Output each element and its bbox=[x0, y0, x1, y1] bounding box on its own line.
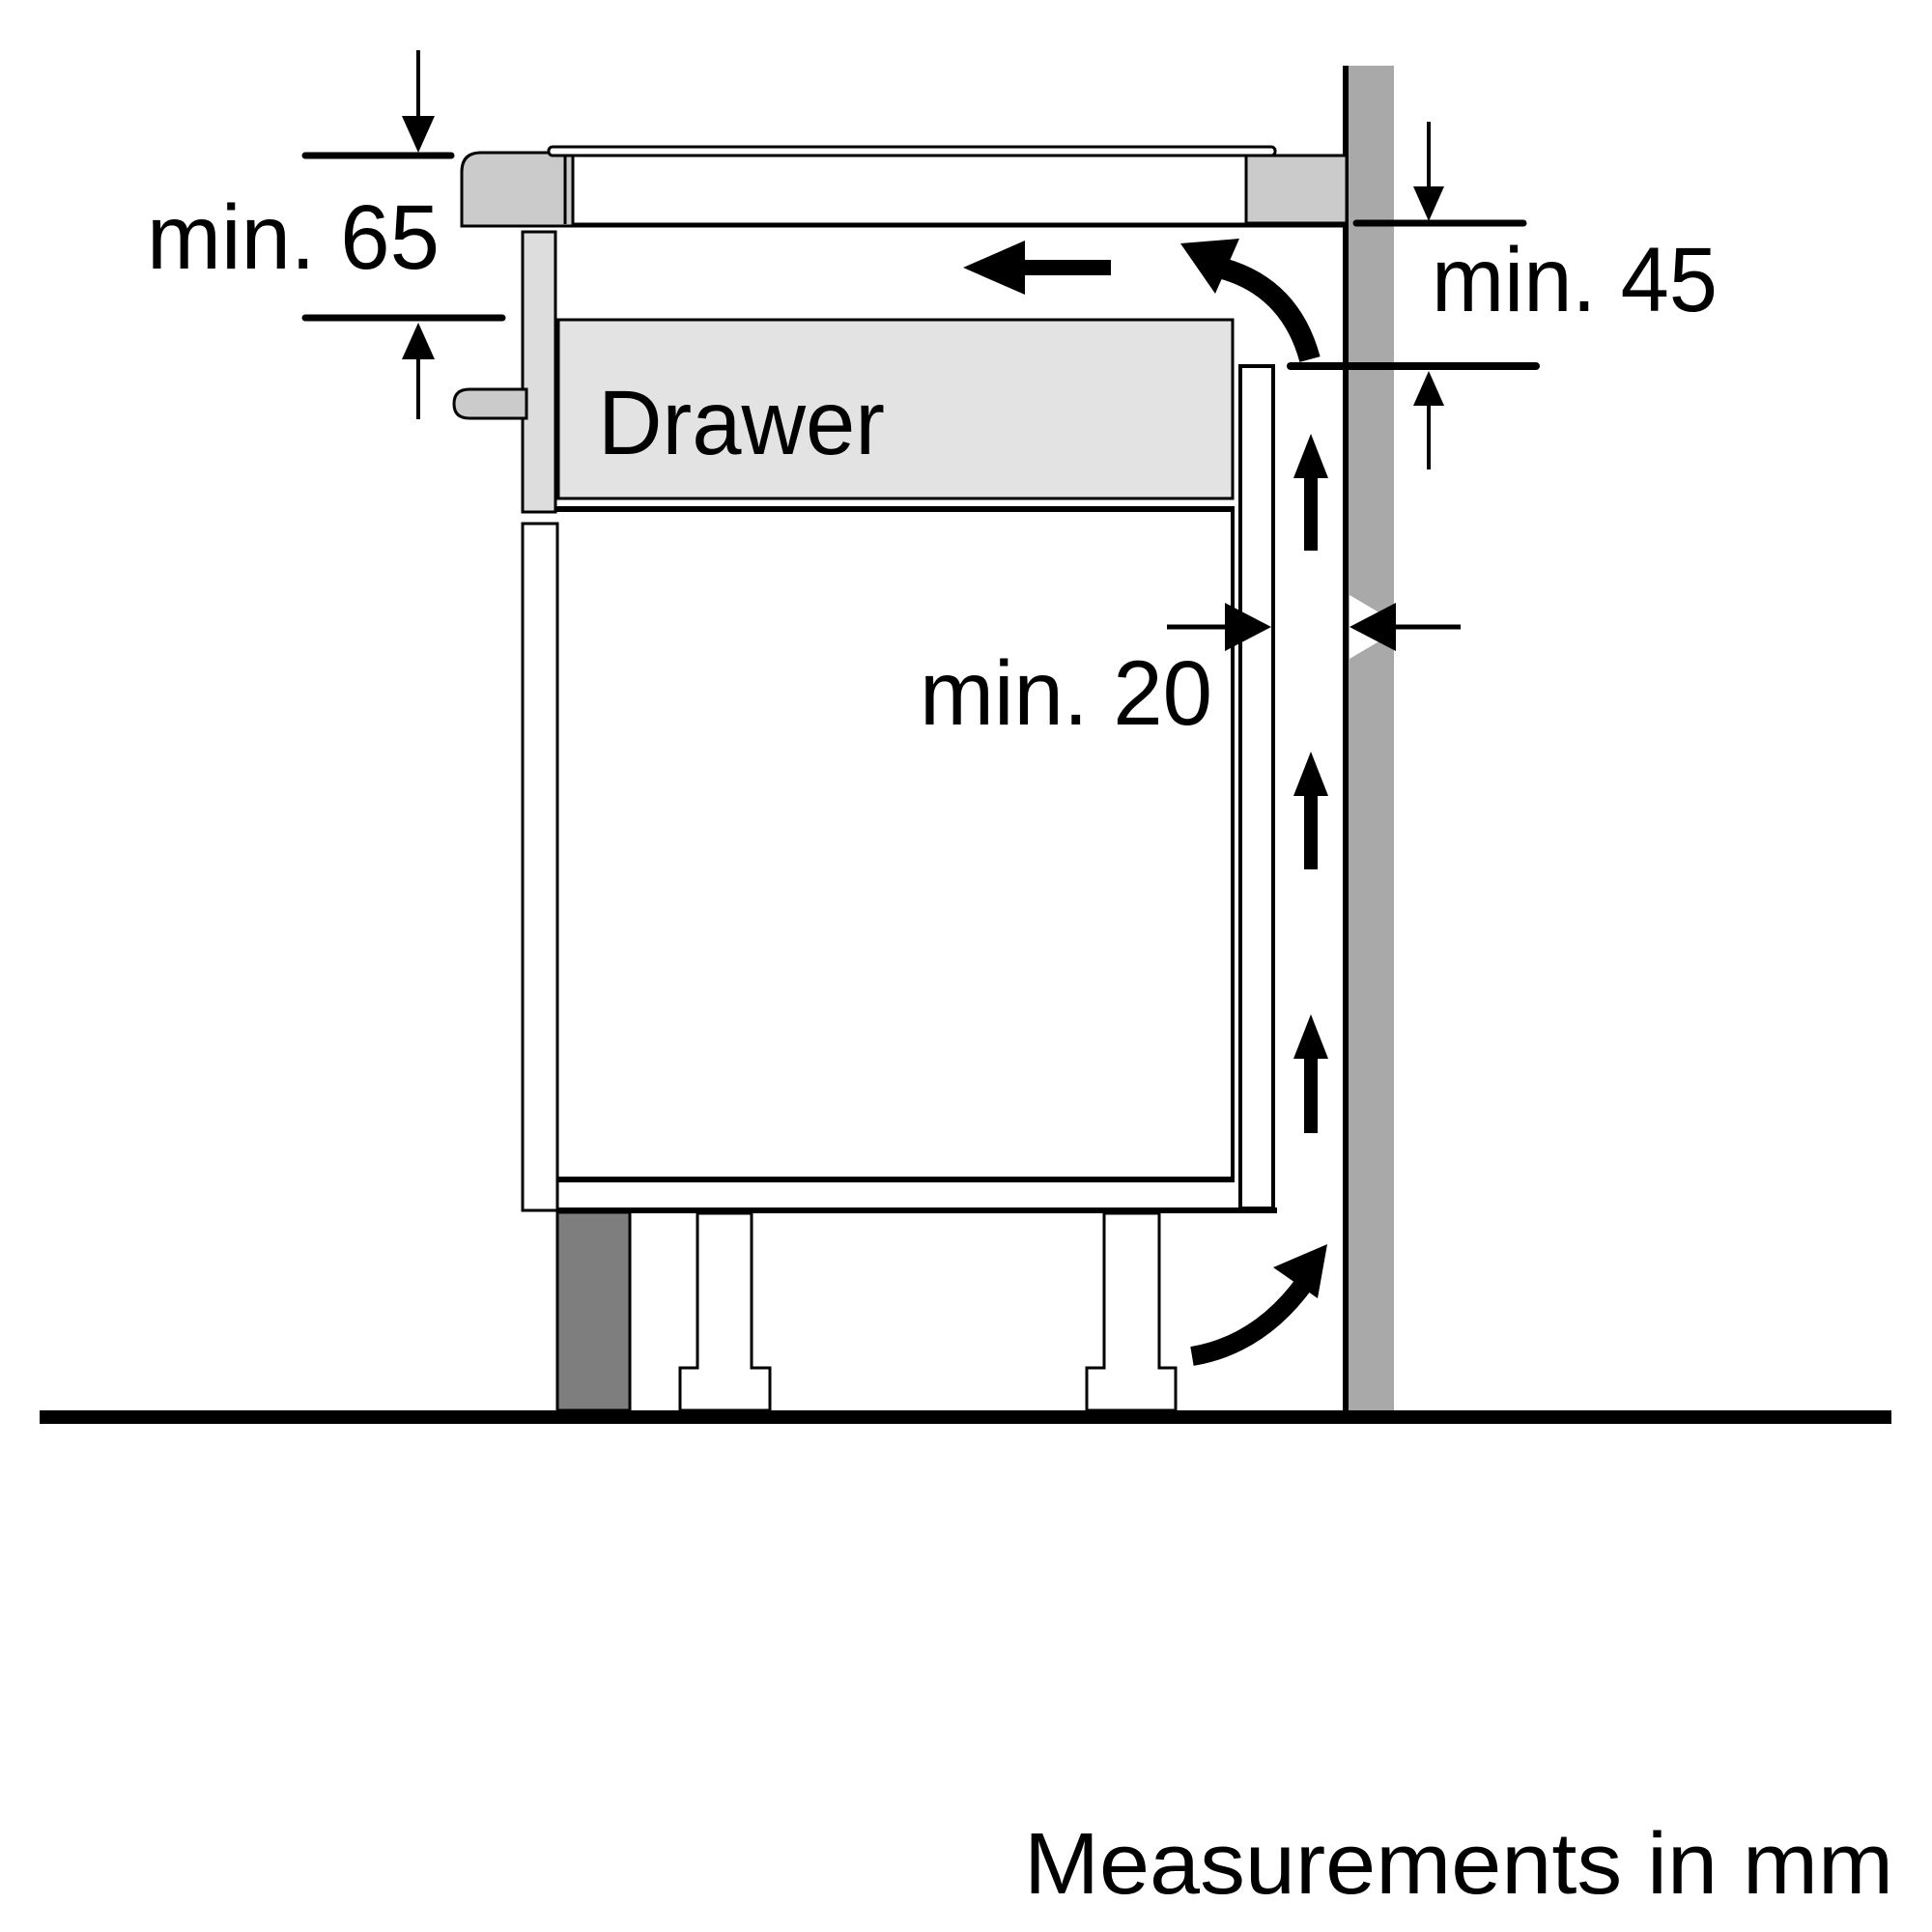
caption: Measurements in mm bbox=[1024, 1816, 1893, 1913]
up-arrow-icon bbox=[402, 323, 435, 359]
hob-glass-top bbox=[549, 147, 1275, 156]
cabinet-leg-left bbox=[680, 1213, 770, 1410]
up-arrow-head bbox=[1293, 434, 1328, 478]
cabinet: Drawer bbox=[454, 232, 1277, 1410]
down-arrow-icon bbox=[1413, 186, 1444, 221]
curved-arrow-bottom-body bbox=[1192, 1281, 1306, 1356]
up-arrow-head bbox=[1293, 1014, 1328, 1059]
plinth-block bbox=[557, 1212, 630, 1410]
worktop-rear-block bbox=[1246, 156, 1347, 223]
left-arrow-icon bbox=[963, 241, 1111, 295]
dim65-label: min. 65 bbox=[147, 186, 440, 289]
left-arrow-head bbox=[963, 241, 1025, 295]
left-arrow-tail bbox=[1022, 260, 1111, 275]
up-arrow-icon bbox=[1293, 1014, 1328, 1133]
up-arrow-head bbox=[1293, 752, 1328, 796]
dimension-min-65: min. 65 bbox=[147, 50, 502, 419]
wall bbox=[1343, 66, 1394, 1410]
air-channel-board bbox=[1240, 366, 1273, 1208]
hob-and-worktop bbox=[462, 147, 1347, 226]
up-arrow-icon bbox=[1293, 434, 1328, 551]
diagram-canvas: Drawer min. 65 min. 45 bbox=[0, 0, 1932, 1932]
wall-body bbox=[1347, 66, 1394, 1410]
down-arrow-icon bbox=[402, 116, 435, 153]
wall-face-line bbox=[1343, 66, 1349, 1410]
curved-arrow-bottom-icon bbox=[1192, 1244, 1327, 1356]
up-arrow-shaft bbox=[1304, 476, 1318, 551]
dim20-label: min. 20 bbox=[920, 642, 1212, 745]
fixing-peg bbox=[454, 389, 526, 418]
installation-diagram: Drawer min. 65 min. 45 bbox=[0, 0, 1932, 1932]
up-arrow-icon bbox=[1413, 371, 1444, 406]
up-arrow-icon bbox=[1293, 752, 1328, 869]
drawer-front-panel bbox=[523, 232, 555, 512]
cabinet-leg-right bbox=[1087, 1213, 1176, 1410]
cabinet-front-panel bbox=[523, 524, 557, 1210]
dim45-label: min. 45 bbox=[1432, 229, 1718, 331]
up-arrow-shaft bbox=[1304, 1057, 1318, 1133]
curved-arrow-top-body bbox=[1223, 269, 1310, 359]
hob-front-frame bbox=[462, 153, 573, 226]
floor-line bbox=[40, 1410, 1891, 1424]
up-arrow-shaft bbox=[1304, 794, 1318, 869]
drawer-label: Drawer bbox=[598, 372, 885, 474]
